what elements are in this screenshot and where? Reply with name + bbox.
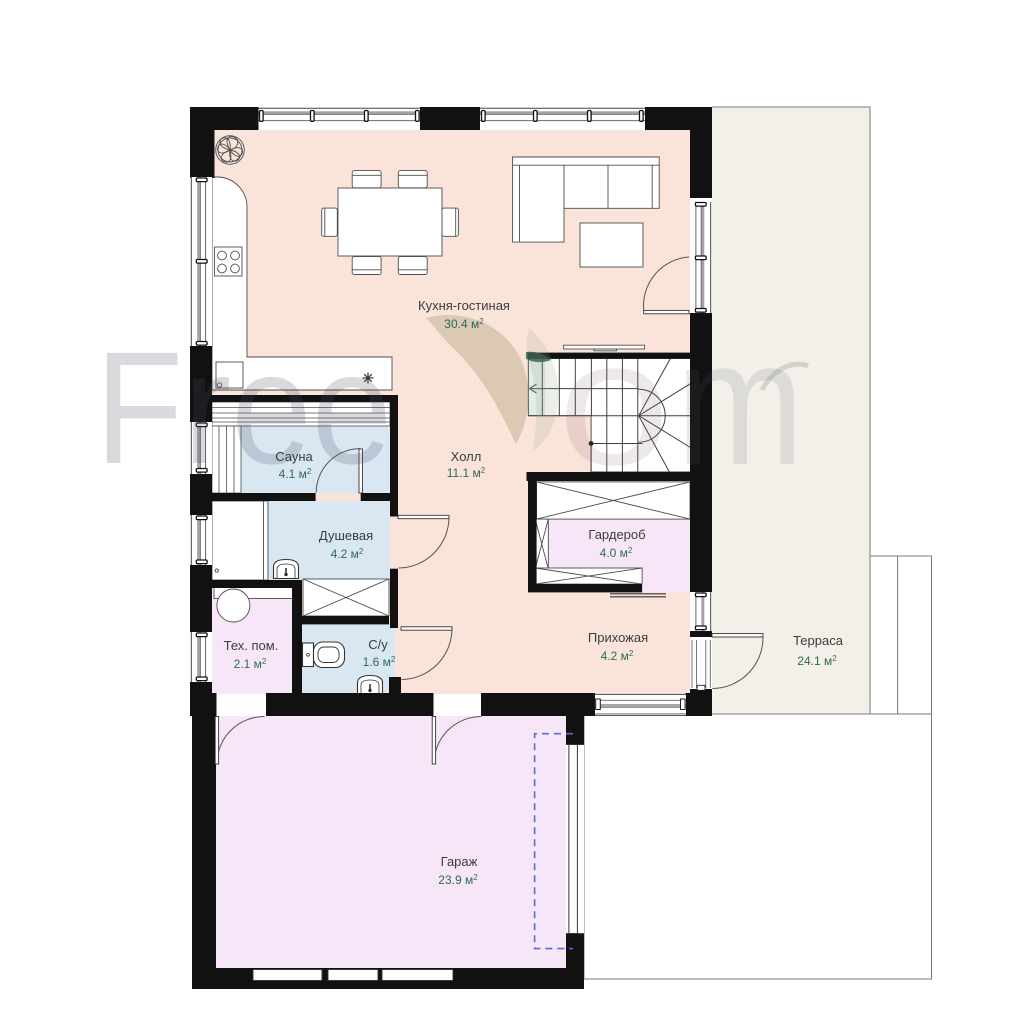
svg-text:Гараж: Гараж xyxy=(441,854,478,869)
svg-text:Тех. пом.: Тех. пом. xyxy=(224,638,279,653)
svg-text:30.4 м2: 30.4 м2 xyxy=(444,317,484,331)
svg-text:Кухня-гостиная: Кухня-гостиная xyxy=(418,298,510,313)
svg-text:Гардероб: Гардероб xyxy=(588,527,645,542)
svg-text:Терраса: Терраса xyxy=(793,633,844,648)
svg-text:Free: Free xyxy=(95,318,392,497)
svg-text:Прихожая: Прихожая xyxy=(588,630,648,645)
svg-text:11.1 м2: 11.1 м2 xyxy=(447,466,486,480)
svg-text:24.1 м2: 24.1 м2 xyxy=(797,654,837,668)
svg-text:o: o xyxy=(558,303,670,502)
svg-text:Сауна: Сауна xyxy=(275,449,313,464)
svg-text:m: m xyxy=(676,303,804,502)
svg-text:С/у: С/у xyxy=(368,637,388,652)
svg-text:Холл: Холл xyxy=(451,449,482,464)
svg-text:Душевая: Душевая xyxy=(319,528,373,543)
svg-text:23.9 м2: 23.9 м2 xyxy=(438,873,478,887)
